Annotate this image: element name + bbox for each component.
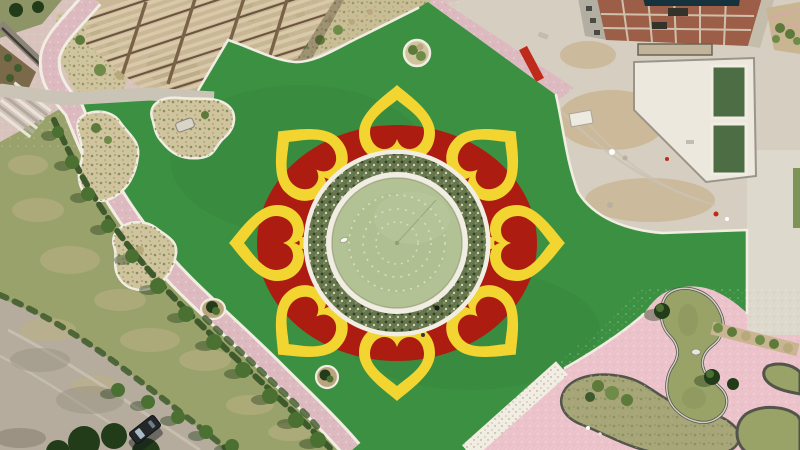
fountain-center xyxy=(395,241,399,245)
hedge-bush xyxy=(14,64,22,72)
window-opening xyxy=(586,6,592,11)
building-roof-slab xyxy=(597,0,762,46)
pool-basin xyxy=(712,66,746,118)
bed-bush xyxy=(621,394,633,406)
flower-centerpiece xyxy=(229,85,565,401)
plaza-pond-southeast xyxy=(737,407,800,450)
pool-basin xyxy=(712,124,746,174)
dirt-patch xyxy=(560,41,616,69)
island-bush xyxy=(91,123,101,133)
person-dot xyxy=(598,432,602,436)
dirt-patch xyxy=(585,178,715,222)
formwork-band xyxy=(638,44,712,55)
pond-boulder xyxy=(692,349,701,355)
person-dot xyxy=(586,426,590,430)
hedge-bush xyxy=(4,54,12,62)
tree xyxy=(9,3,23,17)
island-bush xyxy=(104,136,112,144)
roof-skylight xyxy=(668,8,688,16)
island-bush xyxy=(201,111,209,119)
person-dot xyxy=(434,305,439,310)
window-opening xyxy=(594,30,600,35)
window-opening xyxy=(590,18,596,23)
bed-bush xyxy=(605,386,619,400)
roof-teal-strip xyxy=(643,0,740,6)
aerial-park-photo: Aerial drone view of a park with a flowe… xyxy=(0,0,800,450)
bed-bush xyxy=(592,380,604,392)
right-edge-greenery xyxy=(793,168,800,228)
bed-bush xyxy=(585,392,595,402)
tree xyxy=(32,1,44,13)
roof-skylight xyxy=(652,22,667,29)
dark-dot xyxy=(421,333,425,337)
hedge-bush xyxy=(6,74,14,82)
round-planter xyxy=(404,40,430,66)
round-planter xyxy=(316,366,338,388)
